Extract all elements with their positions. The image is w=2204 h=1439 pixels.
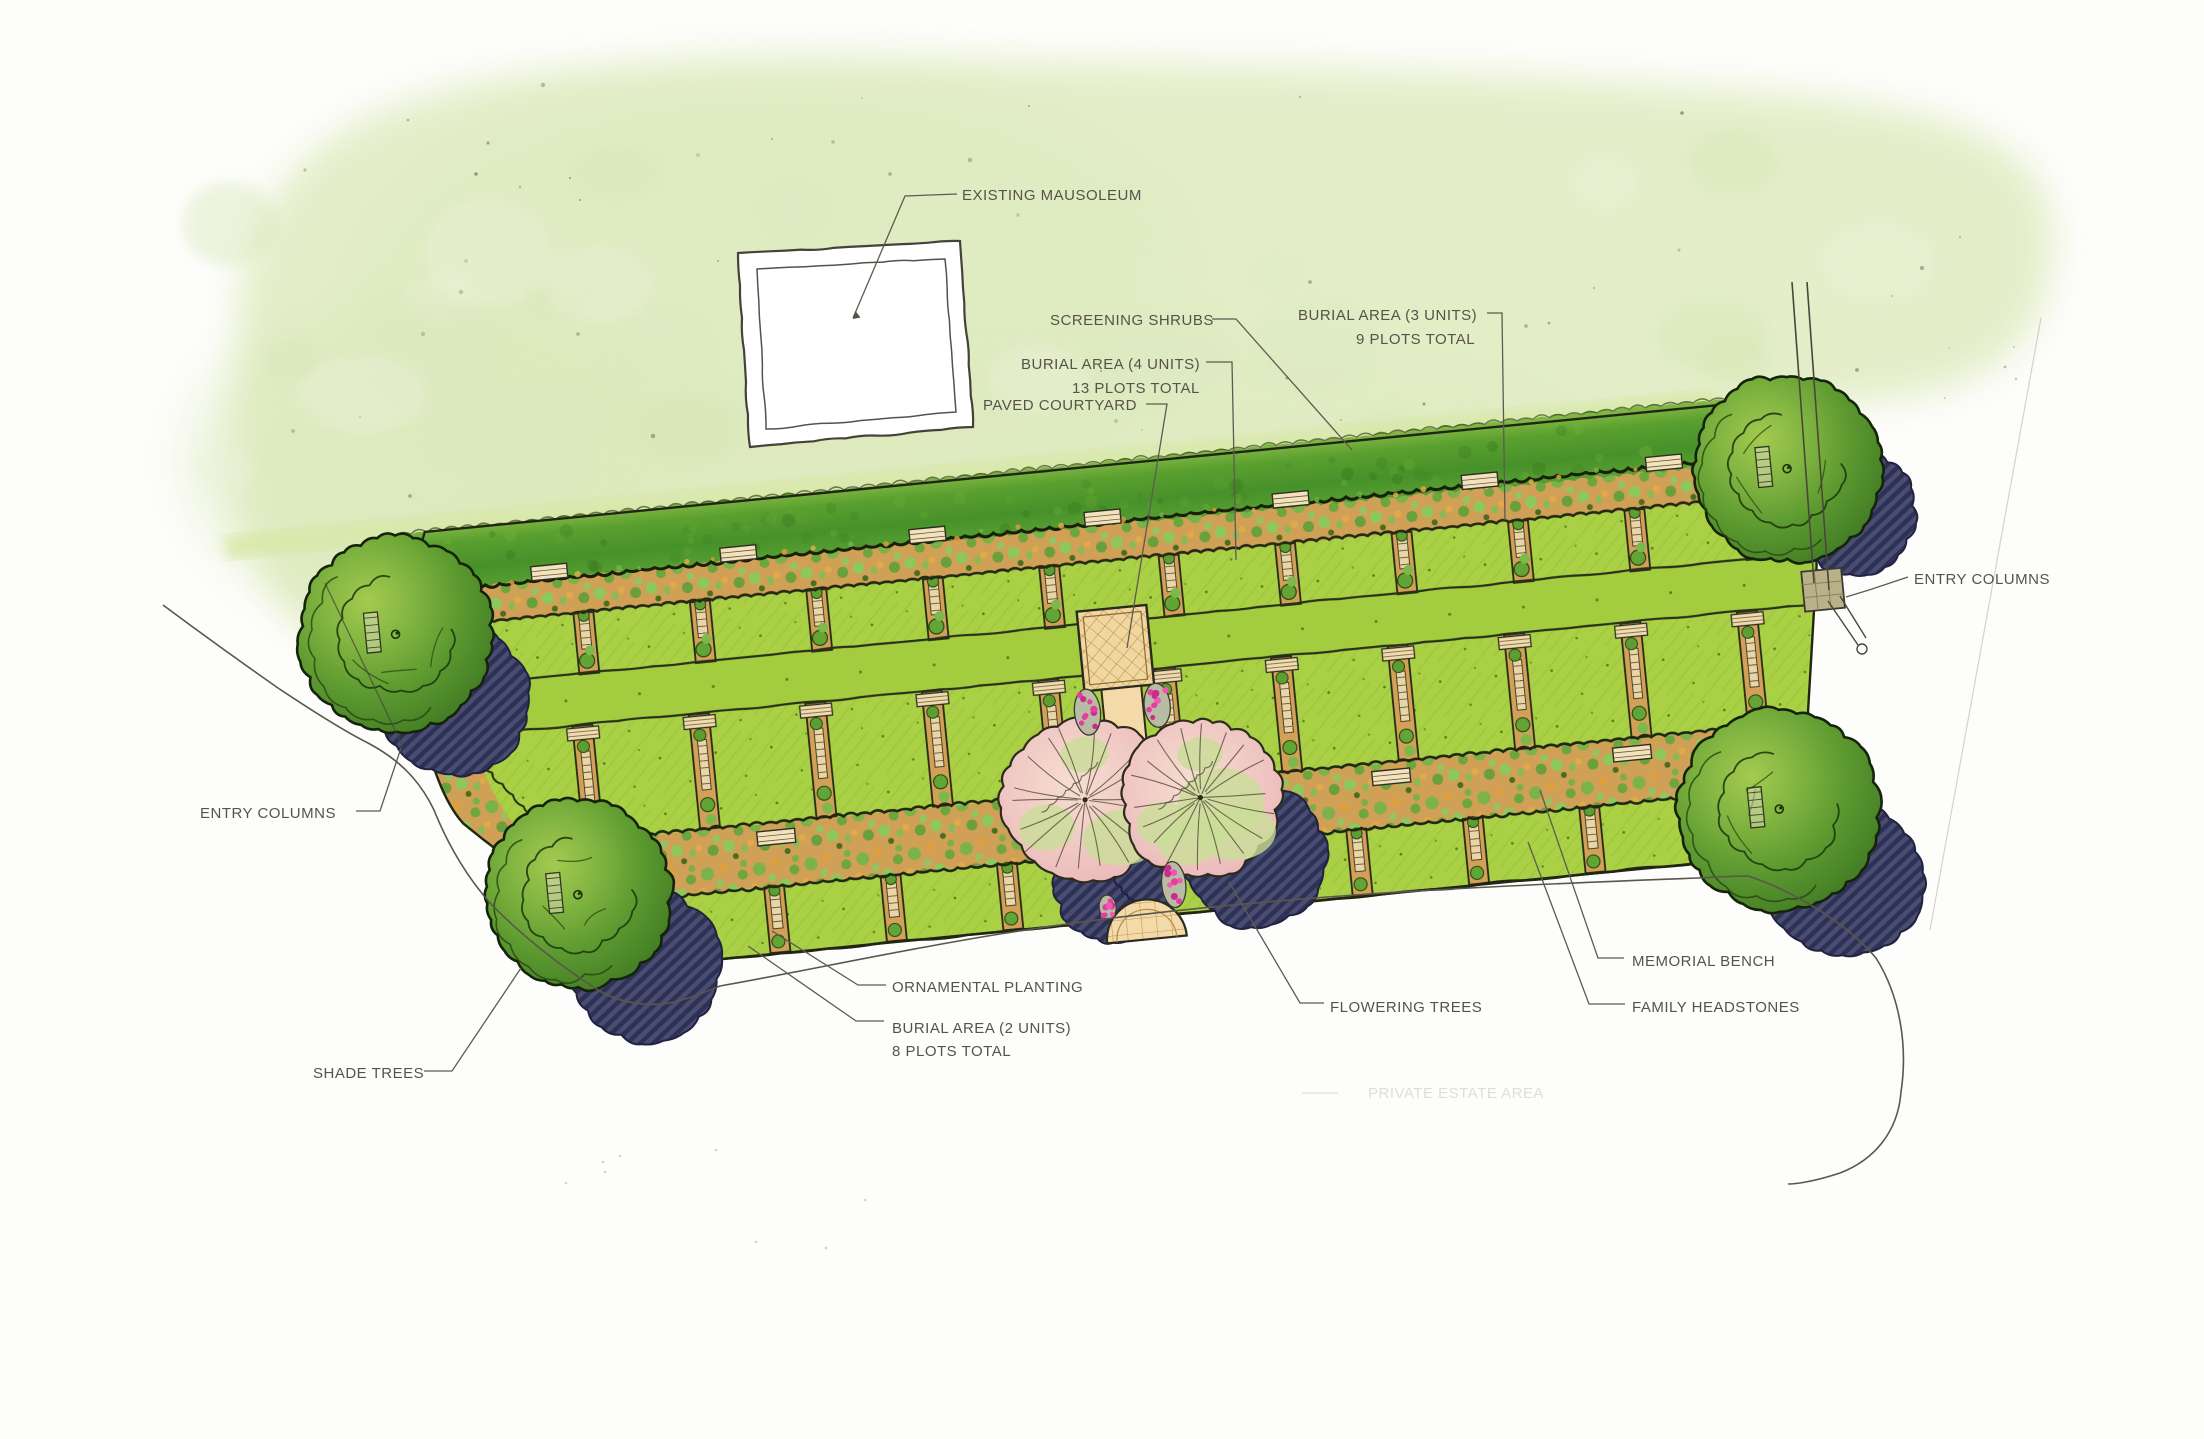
svg-text:EXISTING MAUSOLEUM: EXISTING MAUSOLEUM <box>962 187 1142 204</box>
svg-text:ENTRY COLUMNS: ENTRY COLUMNS <box>200 805 336 822</box>
svg-text:ENTRY COLUMNS: ENTRY COLUMNS <box>1914 571 2050 588</box>
svg-text:PAVED COURTYARD: PAVED COURTYARD <box>983 397 1137 414</box>
svg-text:PRIVATE ESTATE AREA: PRIVATE ESTATE AREA <box>1368 1085 1544 1102</box>
svg-text:SHADE TREES: SHADE TREES <box>313 1065 424 1082</box>
svg-text:ORNAMENTAL PLANTING: ORNAMENTAL PLANTING <box>892 979 1083 996</box>
svg-text:8 PLOTS TOTAL: 8 PLOTS TOTAL <box>892 1043 1011 1060</box>
svg-text:BURIAL AREA (2 UNITS): BURIAL AREA (2 UNITS) <box>892 1020 1071 1037</box>
svg-text:MEMORIAL BENCH: MEMORIAL BENCH <box>1632 953 1775 970</box>
svg-text:BURIAL AREA (4 UNITS): BURIAL AREA (4 UNITS) <box>1021 356 1200 373</box>
svg-text:9 PLOTS TOTAL: 9 PLOTS TOTAL <box>1356 331 1475 348</box>
svg-text:BURIAL AREA (3 UNITS): BURIAL AREA (3 UNITS) <box>1298 307 1477 324</box>
svg-text:13 PLOTS TOTAL: 13 PLOTS TOTAL <box>1072 380 1200 397</box>
svg-text:FLOWERING TREES: FLOWERING TREES <box>1330 999 1482 1016</box>
svg-text:SCREENING SHRUBS: SCREENING SHRUBS <box>1050 312 1214 329</box>
svg-text:FAMILY HEADSTONES: FAMILY HEADSTONES <box>1632 999 1800 1016</box>
